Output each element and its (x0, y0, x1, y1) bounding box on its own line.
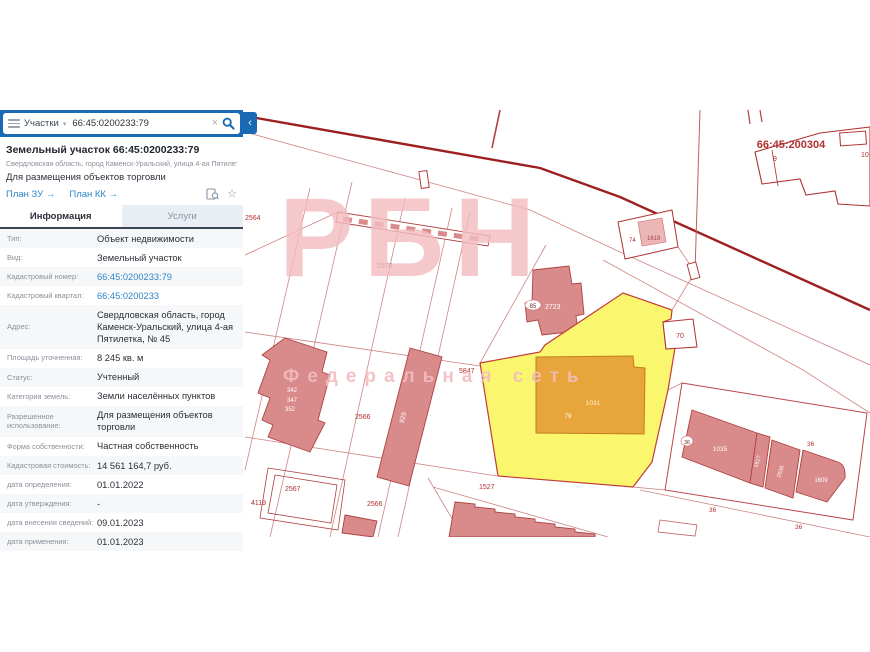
parcel-2567-outline[interactable] (260, 468, 345, 530)
table-row: Кадастровая стоимость:14 561 164,7 руб. (0, 456, 243, 475)
parcel-label: 2567 (285, 486, 301, 493)
table-row: дата применения:01.01.2023 (0, 532, 243, 551)
parcel-label: 5847 (459, 368, 475, 375)
building-label: 1031 (586, 400, 601, 407)
table-row: Статус:Учтенный (0, 368, 243, 387)
tab-information[interactable]: Информация (0, 205, 122, 227)
parcel-line (668, 383, 682, 390)
favorite-star-icon[interactable]: ☆ (227, 189, 237, 200)
table-row: Форма собственности:Частная собственност… (0, 437, 243, 456)
parcel-label: 2566 (367, 501, 383, 508)
parcel-label: 1527 (479, 484, 495, 491)
parcel-line (330, 198, 405, 537)
table-row: дата внесения сведений:09.01.2023 (0, 513, 243, 532)
building-outline[interactable] (840, 131, 867, 146)
parcel-title: Земельный участок 66:45:0200233:79 (6, 144, 237, 156)
badge-85-label: 85 (530, 304, 537, 310)
table-row: дата определения:01.01.2022 (0, 475, 243, 494)
parcel-label: 74 (629, 238, 636, 244)
table-row: Тип:Объект недвижимости (0, 229, 243, 248)
cadastral-map-app: Участки ▾ × ‹ Земельный участок 66:45:02… (0, 0, 870, 652)
quarter-label: 66:45:200304 (757, 139, 826, 151)
garage-outline (658, 520, 697, 536)
parcel-label: 4119 (251, 500, 266, 507)
sidebar: Участки ▾ × ‹ Земельный участок 66:45:02… (0, 110, 243, 537)
small-structure (419, 171, 429, 189)
parcel-label: 70 (676, 333, 684, 340)
boundary-line (760, 110, 762, 122)
building-label: 342 (287, 388, 298, 394)
plan-zu-link[interactable]: План ЗУ → (6, 189, 55, 200)
clear-search-icon[interactable]: × (212, 118, 218, 129)
parcel-2567-inner-outline (268, 475, 337, 523)
menu-icon[interactable] (8, 119, 20, 128)
badge-79-label: 79 (565, 414, 572, 420)
building-829[interactable] (377, 348, 442, 486)
parcel-label: 2564 (245, 215, 261, 222)
sidebar-tabs: Информация Услуги (0, 205, 243, 229)
table-row: Разрешенное использование:Для размещения… (0, 406, 243, 437)
parcel-result-card: Земельный участок 66:45:0200233:79 Сверд… (0, 137, 243, 205)
cadastral-map-canvas[interactable]: 66:45:200304 9 10 74 1618 70 2570 2564 5… (243, 110, 870, 537)
result-action-icons: ☆ (206, 188, 237, 200)
search-bar: Участки ▾ × ‹ (0, 110, 243, 137)
parcel-label: 36 (807, 441, 815, 448)
boundary-line (695, 110, 700, 272)
search-input[interactable] (72, 118, 207, 129)
building-label: 2723 (545, 304, 561, 311)
collapse-panel-button[interactable]: ‹ (243, 112, 257, 134)
app-content: Участки ▾ × ‹ Земельный участок 66:45:02… (0, 110, 870, 537)
building-label: 1609 (814, 478, 828, 484)
small-structure (687, 262, 700, 280)
tab-services[interactable]: Услуги (122, 205, 244, 227)
boundary-line (492, 110, 500, 148)
parcel-label: 9 (773, 156, 777, 163)
document-search-icon[interactable] (206, 188, 219, 200)
badge-36-label: 36 (684, 440, 690, 446)
building-south[interactable] (342, 515, 377, 537)
plan-kk-link[interactable]: План КК → (69, 189, 118, 200)
parcel-label: 2570 (377, 263, 393, 270)
building-1031-selected[interactable] (536, 356, 645, 434)
parcel-label: 2566 (355, 414, 371, 421)
map-pane[interactable]: 66:45:200304 9 10 74 1618 70 2570 2564 5… (243, 110, 870, 537)
table-row: дата утверждения:- (0, 494, 243, 513)
search-box[interactable]: Участки ▾ × (3, 113, 240, 134)
building-label: 1035 (713, 446, 728, 453)
building-label: 347 (287, 398, 298, 404)
building-label: 1618 (647, 236, 661, 242)
table-row: Площадь уточненная:8 245 кв. м (0, 349, 243, 368)
parcel-details-table: Тип:Объект недвижимости Вид:Земельный уч… (0, 229, 243, 551)
parcel-links-row: План ЗУ → План КК → ☆ (6, 188, 237, 202)
building-zigzag-west[interactable] (258, 338, 330, 452)
parcel-label: 36 (795, 524, 803, 531)
building-label: 352 (285, 407, 296, 413)
parcel-usage-line: Для размещения объектов торговли (6, 172, 237, 183)
table-row-cadastral-quarter: Кадастровый квартал:66:45:0200233 (0, 286, 243, 305)
search-category-select[interactable]: Участки (24, 118, 59, 129)
boundary-line (748, 110, 750, 124)
search-icon[interactable] (222, 117, 235, 130)
table-row: Категория земель:Земли населённых пункто… (0, 387, 243, 406)
cadastral-quarter-link[interactable]: 66:45:0200233 (97, 290, 243, 302)
parcel-label: 10 (861, 152, 869, 159)
chevron-down-icon[interactable]: ▾ (63, 120, 67, 128)
parcel-address-line: Свердловская область, город Каменск-Урал… (6, 159, 237, 168)
parcel-line (633, 487, 665, 490)
table-row: Вид:Земельный участок (0, 248, 243, 267)
cadastral-number-link[interactable]: 66:45:0200233:79 (97, 271, 243, 283)
parcel-label: 36 (709, 507, 717, 514)
table-row: Адрес:Свердловская область, город Каменс… (0, 305, 243, 348)
building-sawtooth-south[interactable] (449, 502, 595, 537)
table-row-cadastral-number: Кадастровый номер:66:45:0200233:79 (0, 267, 243, 286)
